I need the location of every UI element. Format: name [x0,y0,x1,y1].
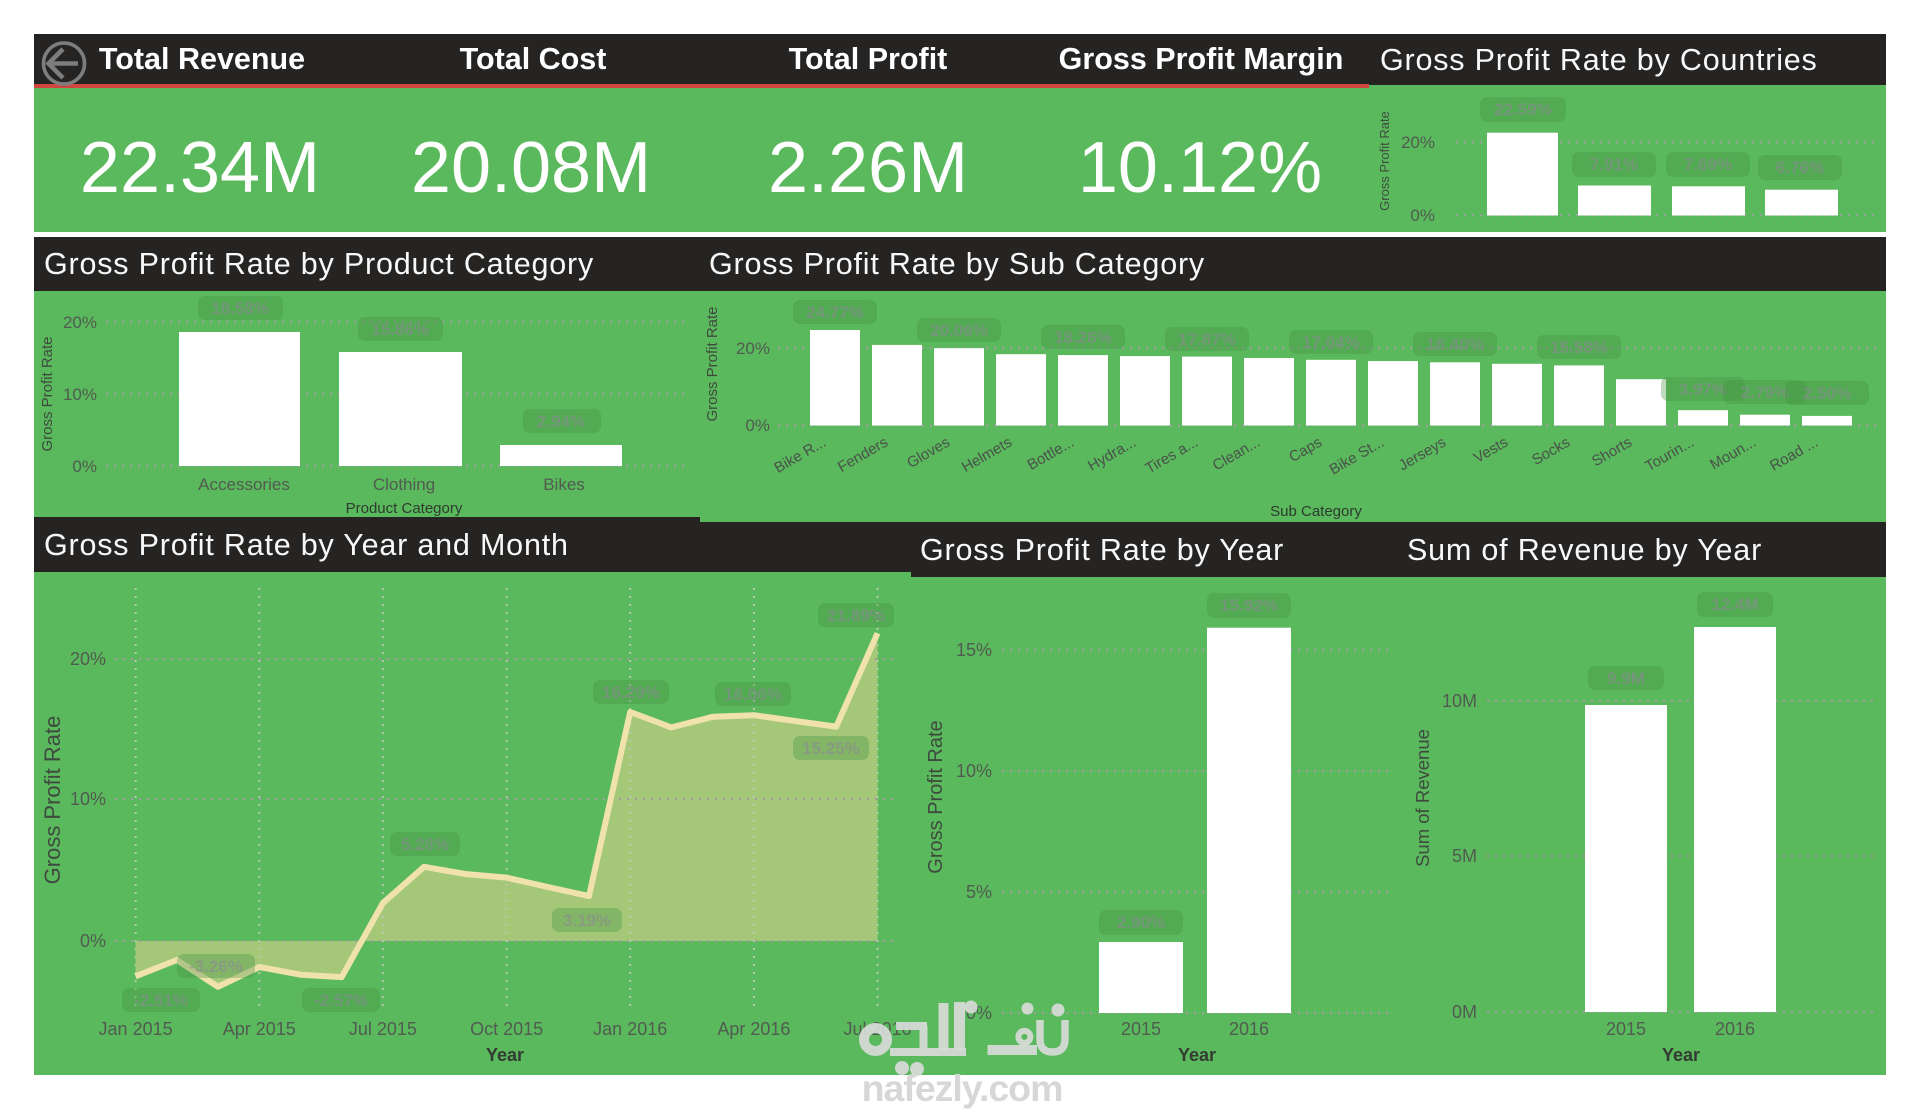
svg-text:Sum of Revenue by Year: Sum of Revenue by Year [1407,533,1762,567]
svg-text:Year: Year [486,1045,524,1065]
svg-text:21.89%: 21.89% [827,606,885,625]
svg-text:Gross Profit Rate: Gross Profit Rate [925,720,947,873]
svg-text:15.25%: 15.25% [802,739,860,758]
svg-text:20%: 20% [63,313,97,332]
svg-text:Jerseys: Jerseys [1396,434,1449,475]
svg-text:Helmets: Helmets [959,434,1015,476]
svg-text:0%: 0% [745,416,770,435]
svg-text:Caps: Caps [1286,434,1325,466]
svg-text:Gross Profit Rate: Gross Profit Rate [704,306,721,421]
svg-text:15%: 15% [956,640,992,660]
svg-text:Socks: Socks [1529,434,1573,469]
svg-text:Gross Profit Rate: Gross Profit Rate [40,716,65,885]
svg-text:Road ...: Road ... [1767,434,1821,475]
svg-text:Sum of Revenue: Sum of Revenue [1412,729,1433,867]
svg-text:7.91%: 7.91% [1590,155,1638,174]
svg-text:Hydra...: Hydra... [1085,434,1139,475]
svg-text:22.59%: 22.59% [1494,100,1552,119]
svg-text:-2.57%: -2.57% [314,991,368,1010]
svg-text:Bikes: Bikes [543,475,585,494]
svg-text:Gross Profit Rate by Year: Gross Profit Rate by Year [920,533,1284,567]
svg-text:24.77%: 24.77% [806,303,864,322]
svg-text:15.92%: 15.92% [1220,596,1278,615]
svg-text:Oct 2015: Oct 2015 [470,1019,543,1039]
svg-text:Gross Profit Margin: Gross Profit Margin [1059,42,1344,76]
svg-text:17.87%: 17.87% [1178,330,1236,349]
svg-text:Product Category: Product Category [346,500,463,517]
svg-text:2.90%: 2.90% [1117,913,1165,932]
svg-text:2015: 2015 [1121,1019,1161,1039]
svg-text:Sub Category: Sub Category [1270,503,1362,520]
svg-text:15.58%: 15.58% [1550,338,1608,357]
svg-text:20.06%: 20.06% [930,321,988,340]
svg-text:Clean...: Clean... [1210,434,1263,475]
svg-text:-3.26%: -3.26% [189,957,243,976]
svg-text:0M: 0M [1452,1002,1477,1022]
svg-text:2016: 2016 [1229,1019,1269,1039]
svg-text:0%: 0% [1410,206,1435,225]
svg-text:10%: 10% [956,761,992,781]
svg-text:22.34M: 22.34M [80,128,320,208]
svg-text:Apr 2016: Apr 2016 [717,1019,790,1039]
svg-text:Year: Year [1662,1045,1700,1065]
svg-text:10M: 10M [1442,691,1477,711]
svg-text:16.29%: 16.29% [602,683,660,702]
svg-text:7.69%: 7.69% [1684,155,1732,174]
svg-text:Bike St...: Bike St... [1327,434,1387,479]
svg-text:15.86%: 15.86% [371,320,429,339]
svg-text:20%: 20% [736,339,770,358]
svg-text:20%: 20% [70,649,106,669]
svg-text:0%: 0% [72,457,97,476]
svg-text:20.08M: 20.08M [411,128,651,208]
svg-text:Gross Profit Rate by Year and: Gross Profit Rate by Year and Month [44,528,569,562]
svg-text:2.79%: 2.79% [1741,383,1789,402]
svg-text:Gross Profit Rate by Sub Categ: Gross Profit Rate by Sub Category [709,247,1205,281]
svg-text:2.94%: 2.94% [537,412,585,431]
svg-text:5%: 5% [966,882,992,902]
svg-text:Vests: Vests [1471,434,1511,467]
svg-text:18.26%: 18.26% [1054,328,1112,347]
svg-text:Gross Profit Rate: Gross Profit Rate [1377,111,1392,211]
svg-text:3.19%: 3.19% [563,911,611,930]
svg-text:2016: 2016 [1715,1019,1755,1039]
svg-text:17.04%: 17.04% [1302,333,1360,352]
svg-text:Gross Profit Rate by Product C: Gross Profit Rate by Product Category [44,247,594,281]
svg-text:16.06%: 16.06% [724,685,782,704]
svg-text:10%: 10% [63,385,97,404]
svg-text:Moun...: Moun... [1707,434,1759,474]
svg-text:Bike R...: Bike R... [771,434,829,477]
svg-text:18.58%: 18.58% [211,299,269,318]
svg-text:Year: Year [1178,1045,1216,1065]
svg-text:2.26M: 2.26M [768,128,968,208]
svg-text:Gross Profit Rate: Gross Profit Rate [39,336,56,451]
svg-text:Jul 2015: Jul 2015 [349,1019,417,1039]
svg-text:Gross Profit Rate by Countries: Gross Profit Rate by Countries [1380,43,1818,77]
svg-text:2015: 2015 [1606,1019,1646,1039]
svg-text:6.76%: 6.76% [1776,158,1824,177]
svg-text:Fenders: Fenders [835,434,891,476]
svg-text:nafezly.com: nafezly.com [862,1067,1063,1109]
svg-text:Total Cost: Total Cost [460,42,607,76]
svg-text:Tires a...: Tires a... [1142,434,1201,478]
svg-text:10.12%: 10.12% [1078,128,1322,208]
svg-text:5M: 5M [1452,846,1477,866]
svg-text:Bottle...: Bottle... [1024,434,1077,474]
svg-text:Apr 2015: Apr 2015 [223,1019,296,1039]
svg-text:3.97%: 3.97% [1679,380,1727,399]
svg-text:Total Profit: Total Profit [789,42,948,76]
svg-text:Clothing: Clothing [373,475,435,494]
svg-text:Accessories: Accessories [198,475,290,494]
svg-text:Total Revenue: Total Revenue [99,42,305,76]
svg-text:Shorts: Shorts [1589,434,1635,470]
svg-text:-2.51%: -2.51% [134,991,188,1010]
svg-text:Tourin...: Tourin... [1642,434,1697,475]
svg-text:16.40%: 16.40% [1426,335,1484,354]
svg-text:Gloves: Gloves [904,434,953,472]
svg-text:20%: 20% [1401,133,1435,152]
svg-text:Jan 2015: Jan 2015 [99,1019,173,1039]
svg-text:2.50%: 2.50% [1803,384,1851,403]
svg-text:10%: 10% [70,789,106,809]
svg-text:0%: 0% [80,931,106,951]
svg-text:Jan 2016: Jan 2016 [593,1019,667,1039]
svg-text:5.28%: 5.28% [401,835,449,854]
svg-text:12.4M: 12.4M [1711,595,1758,614]
svg-text:9.9M: 9.9M [1607,669,1645,688]
